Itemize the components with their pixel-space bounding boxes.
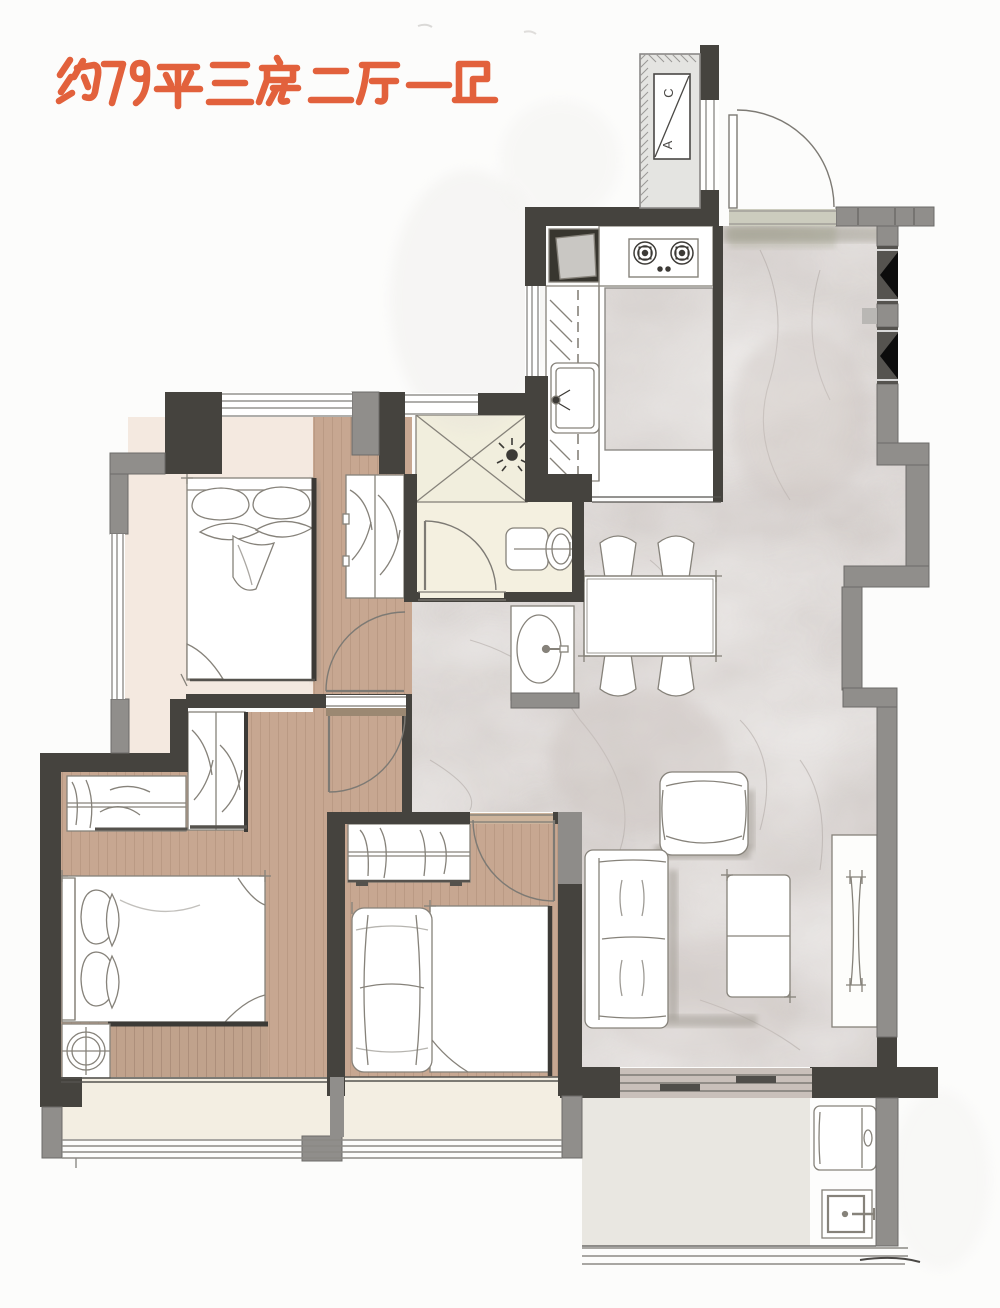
svg-text:C: C [661, 88, 676, 97]
svg-text:A: A [660, 140, 675, 149]
